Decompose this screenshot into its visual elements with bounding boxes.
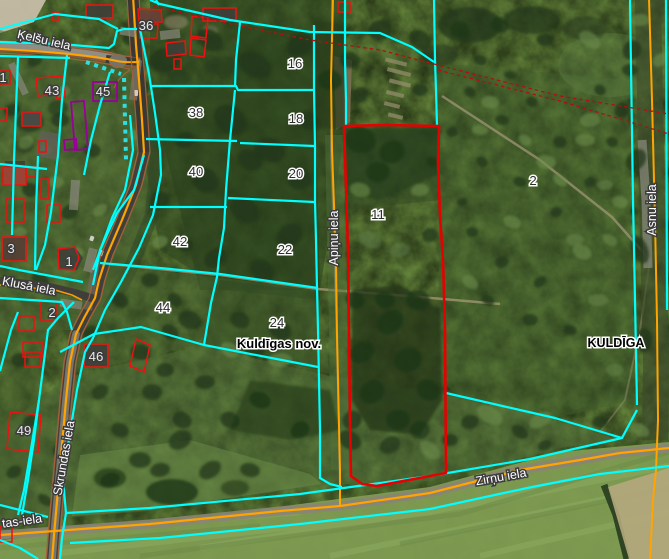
svg-text:43: 43 bbox=[45, 83, 60, 98]
svg-text:1: 1 bbox=[0, 70, 7, 85]
svg-text:1: 1 bbox=[65, 254, 72, 269]
svg-text:18: 18 bbox=[289, 111, 304, 126]
svg-text:42: 42 bbox=[173, 234, 188, 249]
svg-text:49: 49 bbox=[17, 423, 32, 438]
svg-text:45: 45 bbox=[96, 84, 111, 99]
svg-text:46: 46 bbox=[89, 349, 104, 364]
svg-text:16: 16 bbox=[288, 56, 303, 71]
svg-text:3: 3 bbox=[7, 241, 14, 256]
svg-text:24: 24 bbox=[270, 315, 285, 330]
svg-text:22: 22 bbox=[278, 242, 293, 257]
svg-text:40: 40 bbox=[189, 164, 204, 179]
svg-text:44: 44 bbox=[156, 300, 171, 315]
svg-text:2: 2 bbox=[529, 173, 536, 188]
svg-text:Apiņu iela: Apiņu iela bbox=[327, 211, 341, 266]
svg-text:38: 38 bbox=[189, 105, 204, 120]
svg-text:Asnu iela: Asnu iela bbox=[645, 184, 659, 235]
svg-text:Kuldīgas nov.: Kuldīgas nov. bbox=[237, 336, 321, 351]
svg-text:KULDĪGA: KULDĪGA bbox=[588, 336, 645, 350]
svg-text:36: 36 bbox=[139, 18, 154, 33]
svg-text:20: 20 bbox=[289, 166, 304, 181]
svg-text:2: 2 bbox=[48, 305, 55, 320]
svg-text:11: 11 bbox=[371, 207, 385, 222]
